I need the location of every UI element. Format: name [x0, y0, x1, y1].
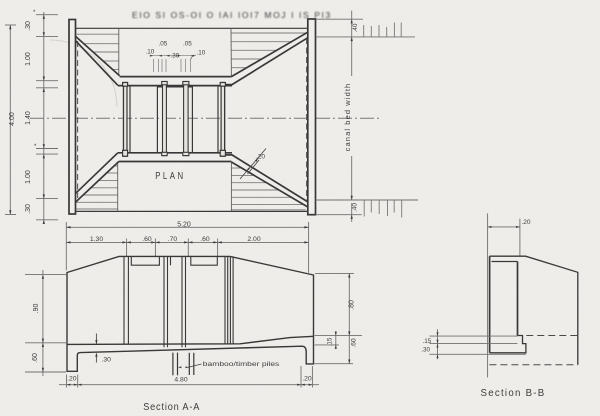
svg-text:.10: .10: [146, 49, 155, 56]
svg-text:1.00: 1.00: [25, 52, 32, 66]
svg-text:.30: .30: [102, 357, 112, 364]
svg-text:canal bed width: canal bed width: [343, 83, 352, 152]
svg-text:4.80: 4.80: [174, 377, 187, 384]
svg-text:.80: .80: [349, 300, 356, 310]
svg-text:.30: .30: [421, 346, 430, 353]
svg-text:1.00: 1.00: [25, 170, 32, 184]
svg-text:2.00: 2.00: [247, 236, 260, 243]
svg-text:.10: .10: [197, 50, 206, 57]
svg-text:bamboo/timber piles: bamboo/timber piles: [203, 361, 280, 368]
svg-text:.30: .30: [25, 204, 32, 214]
svg-text:.15: .15: [423, 338, 432, 345]
svg-text:.60: .60: [32, 353, 39, 363]
svg-text:.30: .30: [25, 21, 32, 31]
svg-text:PLAN: PLAN: [155, 171, 186, 182]
svg-text:.60: .60: [351, 338, 358, 348]
svg-text:1.30: 1.30: [90, 236, 103, 243]
svg-text:.05: .05: [159, 41, 168, 48]
svg-text:.40: .40: [352, 203, 359, 212]
svg-text:.15: .15: [327, 337, 334, 346]
svg-text:4.00: 4.00: [9, 112, 16, 126]
svg-text:.60: .60: [200, 236, 210, 243]
svg-text:.20: .20: [67, 376, 77, 383]
svg-text:Section A-A: Section A-A: [143, 402, 200, 413]
svg-text:.70: .70: [168, 236, 178, 243]
svg-text:.60: .60: [142, 236, 152, 243]
svg-text:.05: .05: [183, 41, 192, 48]
svg-text:.40: .40: [352, 23, 359, 32]
svg-text:1.40: 1.40: [25, 111, 32, 125]
svg-text:.20: .20: [302, 376, 312, 383]
svg-text:.90: .90: [33, 304, 40, 314]
svg-text:Section B-B: Section B-B: [481, 388, 546, 399]
svg-text:EIO SI OS-OI O IAI IOI7 MOJ I: EIO SI OS-OI O IAI IOI7 MOJ I IS PI3: [132, 10, 332, 20]
svg-text:5.20: 5.20: [177, 221, 191, 228]
svg-text:.20: .20: [522, 219, 531, 226]
